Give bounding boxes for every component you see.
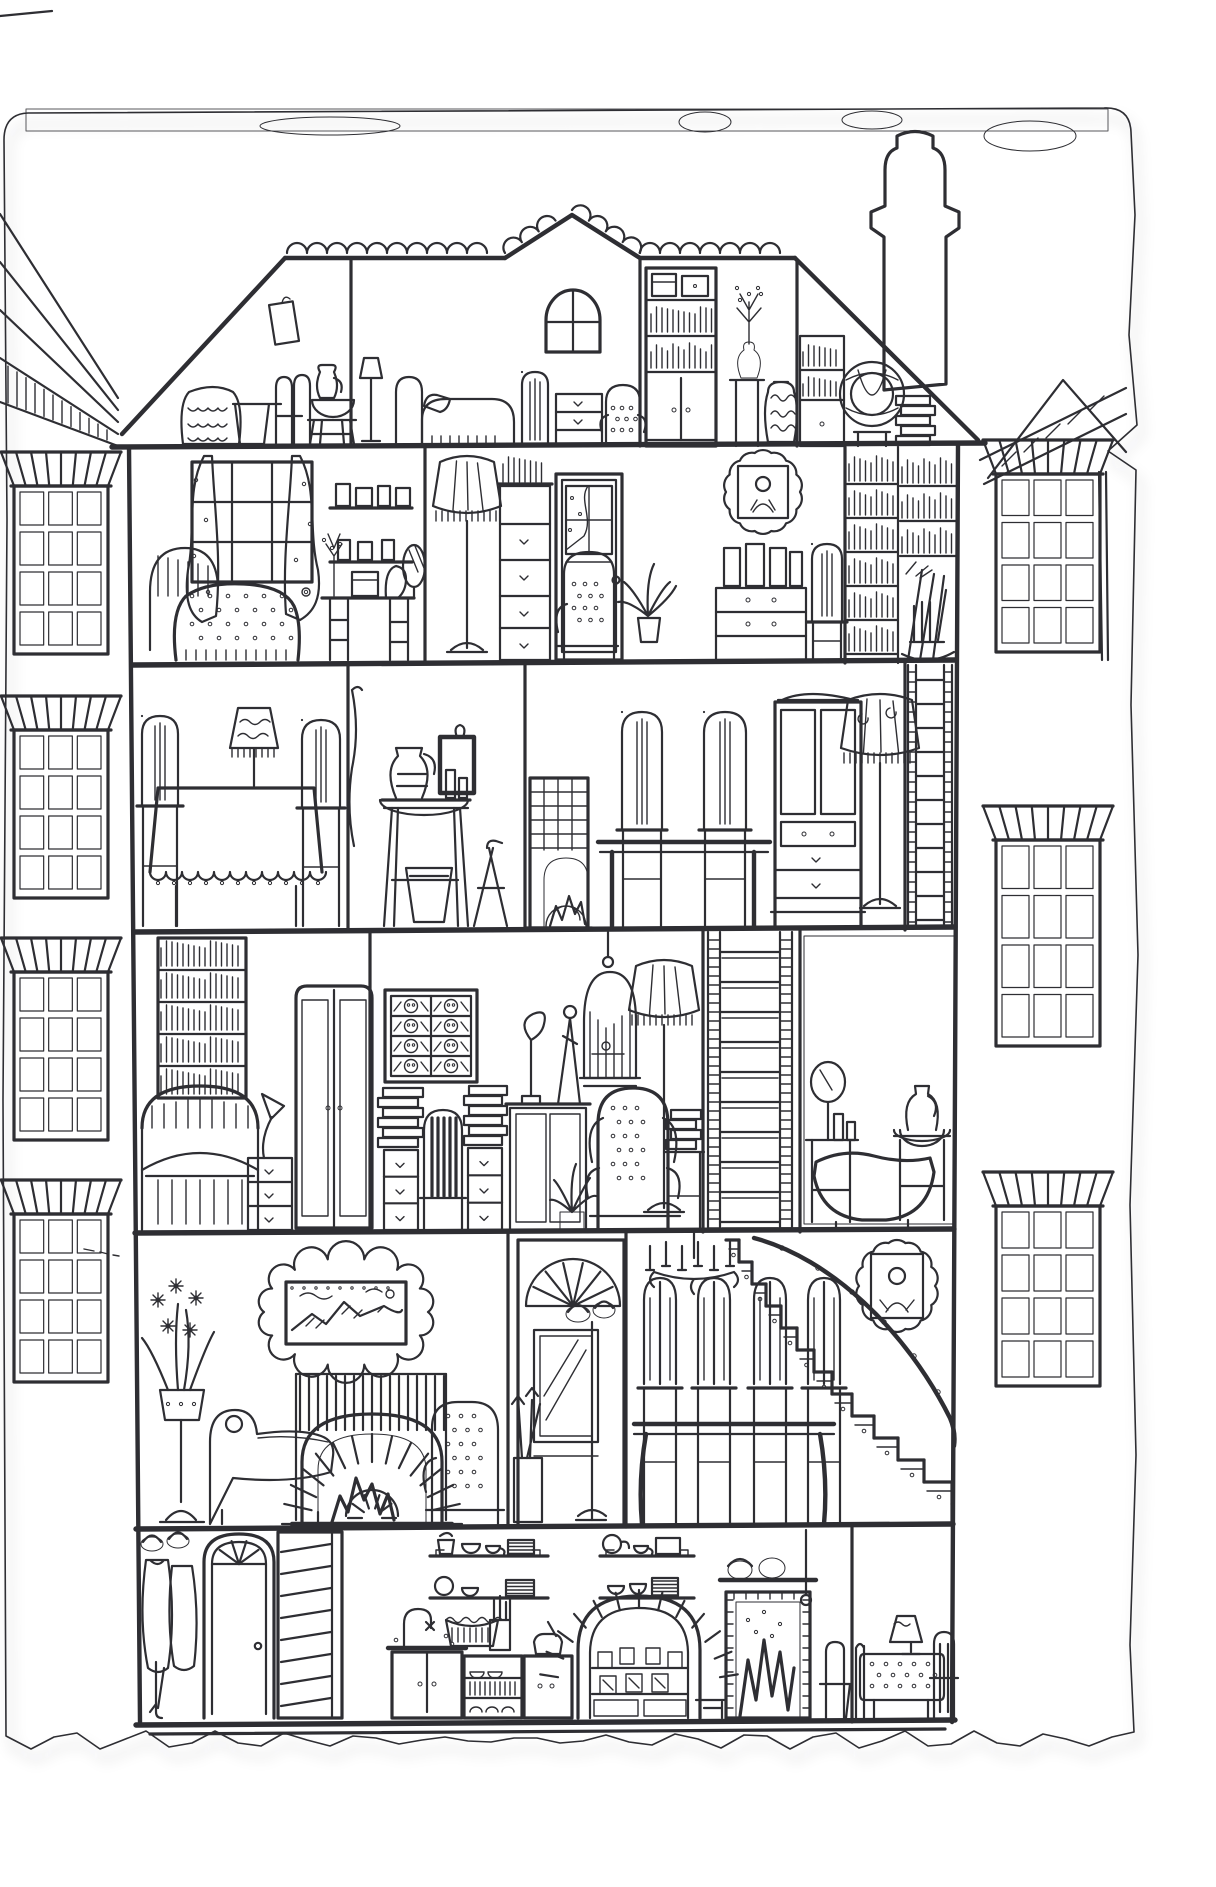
- bathroom: [804, 936, 954, 1230]
- brick-fireplace-icon: [282, 1374, 462, 1524]
- fringed-floor-lamp-icon: [433, 456, 501, 652]
- wardrobe-icon: [296, 986, 372, 1228]
- black-hearth-icon: [696, 1530, 816, 1718]
- dish-rack-icon: [464, 1656, 522, 1718]
- hanging-picture-icon: [269, 297, 299, 344]
- right-neighbour-building: [980, 380, 1126, 1386]
- potted-plant-icon: [618, 564, 676, 642]
- daybed-icon: [142, 1086, 258, 1230]
- table-lamp-icon: [230, 708, 278, 788]
- bucket-icon: [406, 868, 452, 922]
- folding-chair-icon: [474, 841, 507, 926]
- faces-picture-icon: [385, 990, 477, 1082]
- stool-with-bowl-icon: [308, 365, 356, 444]
- striped-chair-icon: [420, 1110, 466, 1230]
- brick-oven-icon: [540, 1590, 738, 1718]
- front-door-icon: [204, 1534, 274, 1718]
- framed-portrait-icon: [724, 450, 802, 534]
- chimney-icon: [871, 132, 959, 391]
- birdcage-icon: [580, 932, 640, 1086]
- tall-bookcase-icon: [158, 938, 246, 1098]
- oval-portrait-icon: [856, 1240, 937, 1332]
- side-chair-icon: [807, 544, 847, 660]
- flower-stand-icon: [142, 1279, 214, 1522]
- mesh-stove-icon: [526, 778, 592, 928]
- study-floor: [142, 930, 954, 1232]
- sink-cabinet-icon: [388, 1609, 466, 1718]
- parlour-chairs: [617, 712, 751, 928]
- left-neighbour-building: [0, 214, 121, 1382]
- patterned-jar-icon: [765, 382, 797, 442]
- kitchen-chair-icon: [820, 1642, 850, 1718]
- writing-bureau-icon: [716, 544, 806, 660]
- dollhouse: [112, 132, 985, 1735]
- basement-stairs-icon: [278, 1532, 342, 1718]
- hanging-cloth-icon: [349, 687, 362, 846]
- hall: [518, 1240, 624, 1526]
- library-wall: [847, 456, 956, 660]
- flower-vase-icon: [730, 286, 764, 446]
- tall-dresser-icon: [498, 457, 552, 660]
- reading-lamp-icon: [360, 358, 382, 441]
- chaise-icon: [210, 1410, 333, 1524]
- china-cabinet-icon: [771, 694, 865, 928]
- landscape-painting-icon: [259, 1241, 433, 1383]
- dish-shelves-icon: [430, 1533, 694, 1598]
- wicker-basket-icon: [181, 387, 240, 444]
- dining-floor: [137, 663, 952, 930]
- kitchen-floor: [141, 1527, 958, 1722]
- hall-table-icon: [634, 1424, 834, 1524]
- fringed-lamp-icon: [629, 960, 699, 1212]
- washstand-icon: [380, 748, 470, 926]
- folding-chair-icon: [276, 375, 310, 444]
- dresser-icon: [556, 394, 602, 446]
- picture-shelves-icon: [330, 484, 412, 562]
- living-floor: [142, 1232, 955, 1527]
- dotted-armchair-icon: [556, 552, 618, 660]
- shelf-cabinet-icon: [646, 268, 716, 446]
- curtained-window-icon: [187, 456, 319, 622]
- small-bookcase-icon: [800, 336, 844, 446]
- wall-ladder-icon: [908, 665, 952, 928]
- breakfast-nook: [856, 1616, 958, 1720]
- sculpture-cabinet-icon: [506, 1006, 590, 1230]
- mixing-bowl-icon: [446, 1618, 502, 1647]
- hall-chairs: [638, 1278, 846, 1524]
- bedroom-floor: [150, 447, 956, 663]
- tall-ladder-icon: [708, 932, 792, 1230]
- dollhouse-illustration: [0, 0, 1216, 1887]
- round-wicker-chair-icon: [840, 362, 904, 446]
- double-bed-icon: [150, 548, 299, 660]
- coat-rack-icon: [141, 1533, 197, 1719]
- single-bed-icon: [396, 377, 514, 444]
- wingback-chair-icon: [586, 1088, 680, 1230]
- slat-chair-icon: [522, 372, 548, 446]
- ink-drawing-canvas: [0, 0, 1216, 1887]
